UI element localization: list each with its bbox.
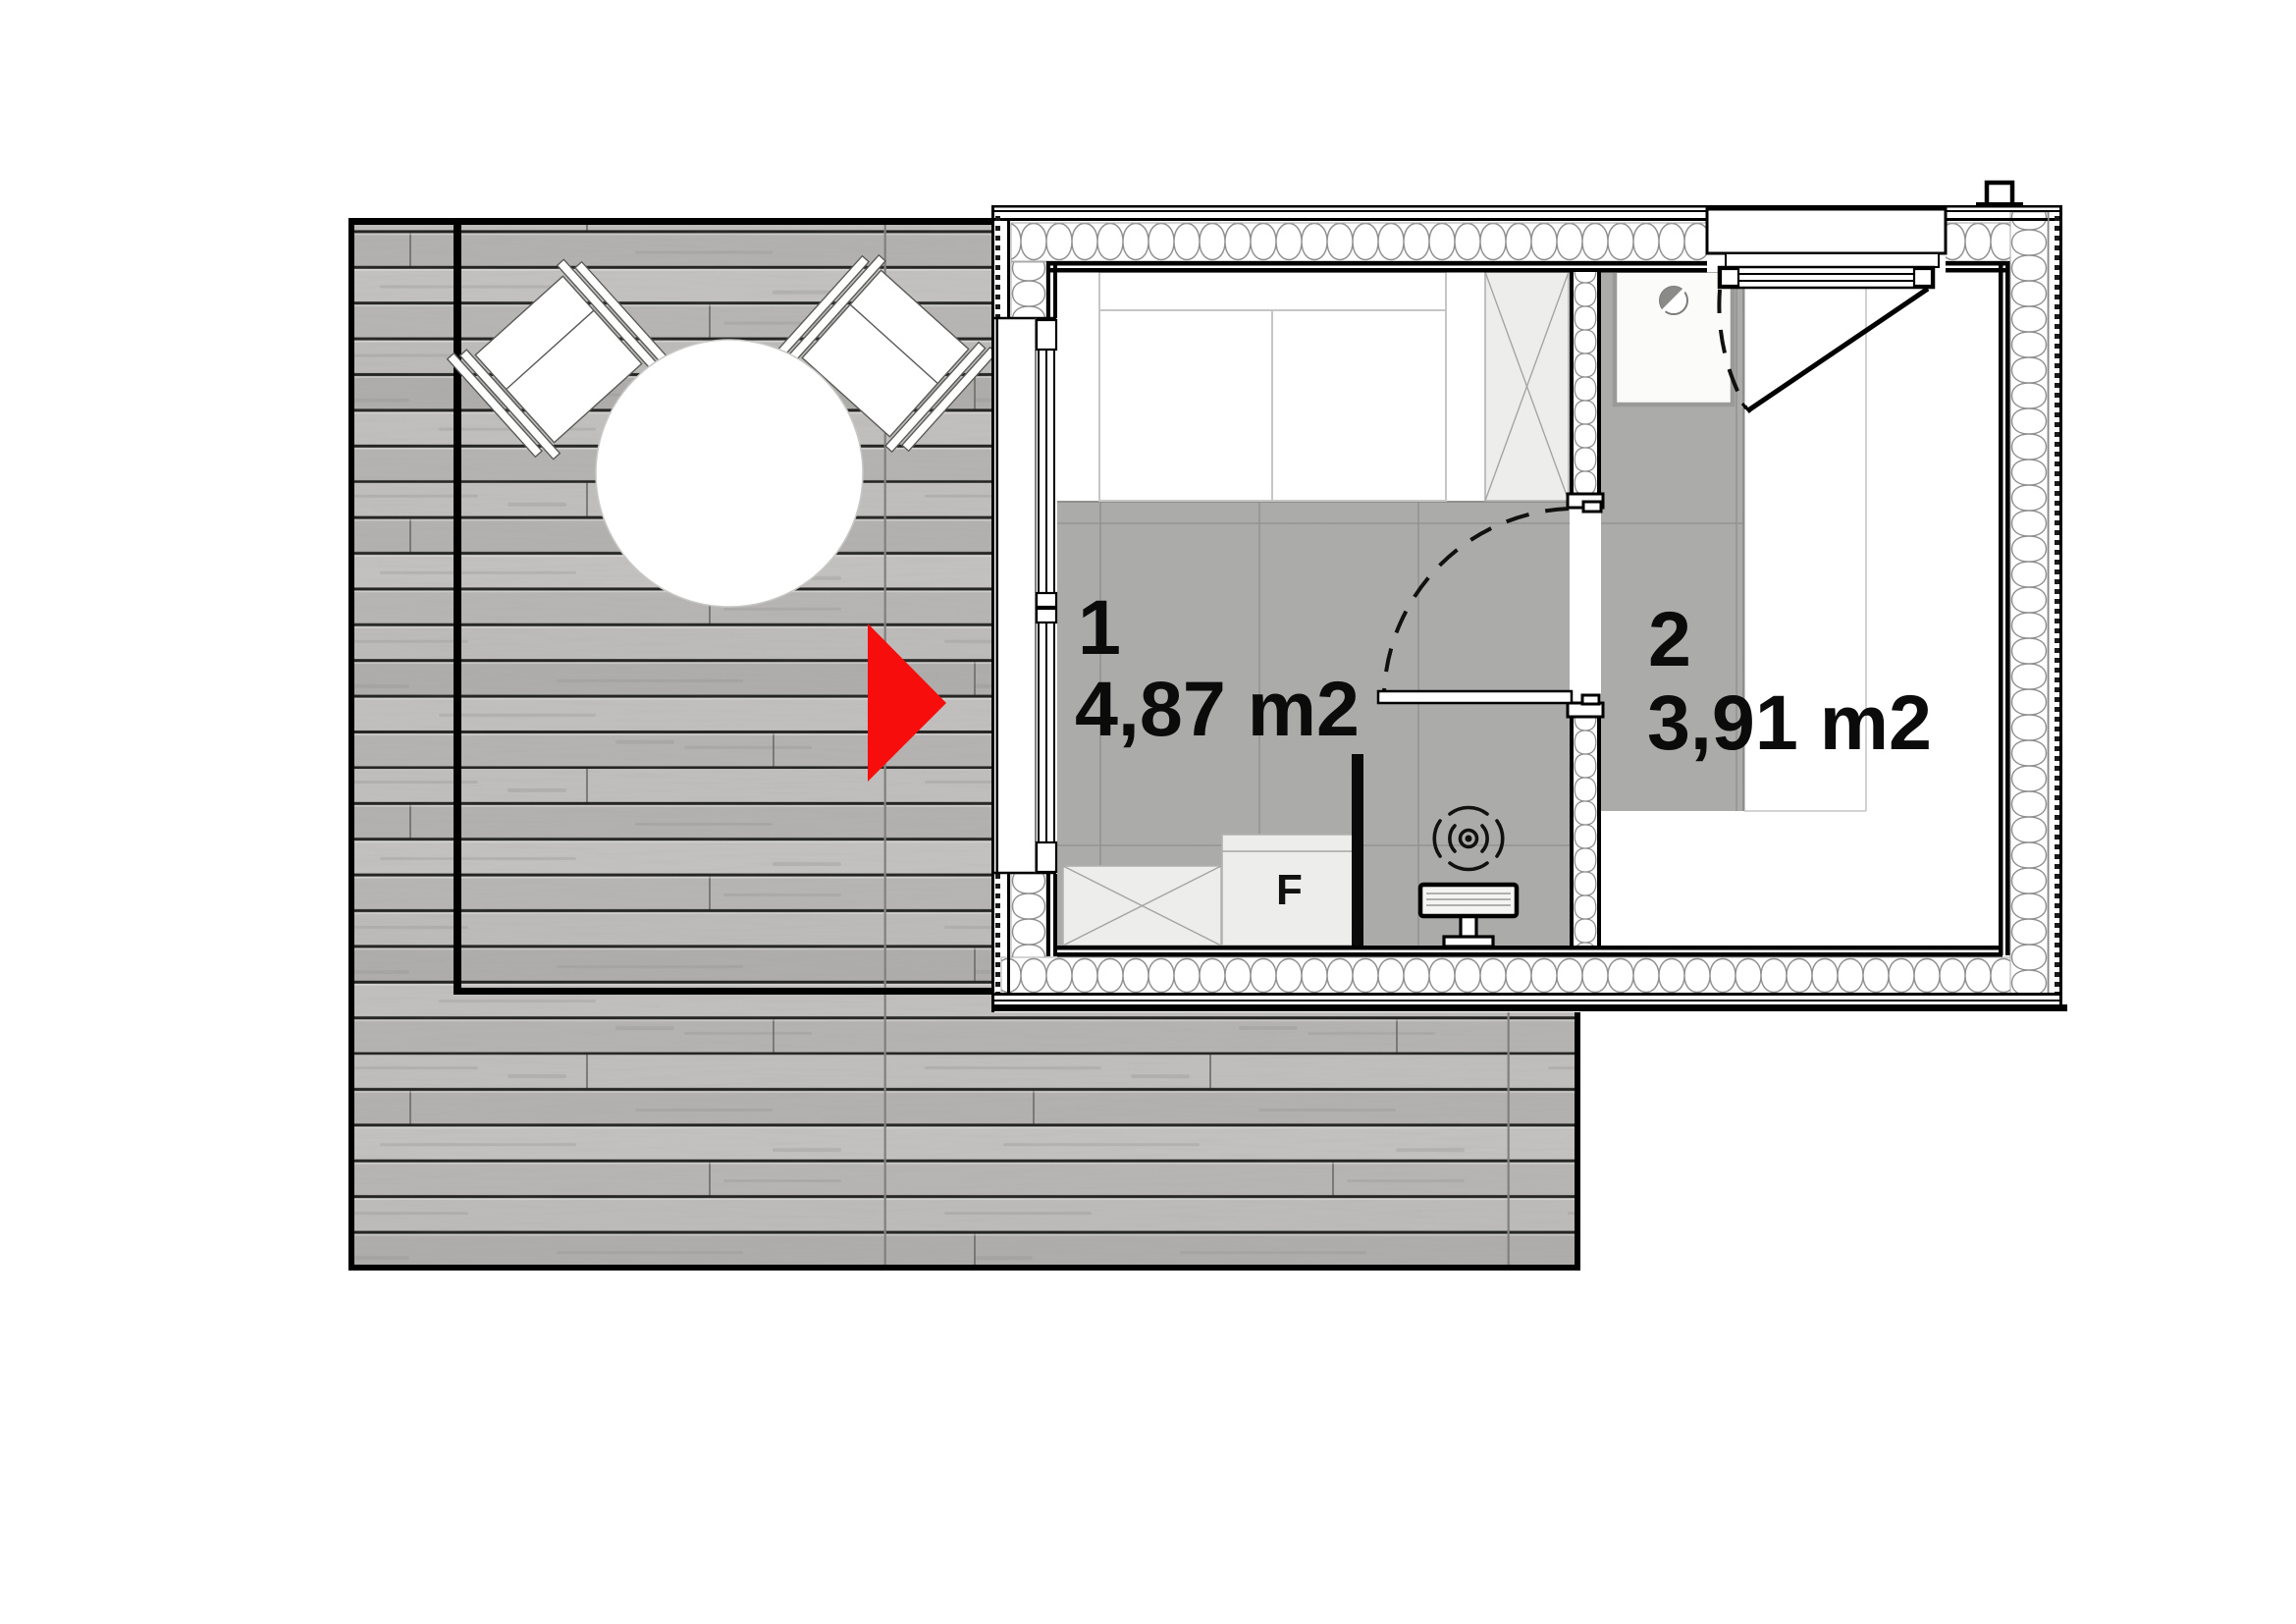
svg-text:1: 1	[1078, 583, 1121, 671]
svg-text:F: F	[1276, 866, 1303, 914]
svg-text:3,91 m2: 3,91 m2	[1647, 678, 1932, 766]
svg-text:4,87 m2: 4,87 m2	[1075, 665, 1360, 752]
svg-text:2: 2	[1648, 595, 1691, 682]
